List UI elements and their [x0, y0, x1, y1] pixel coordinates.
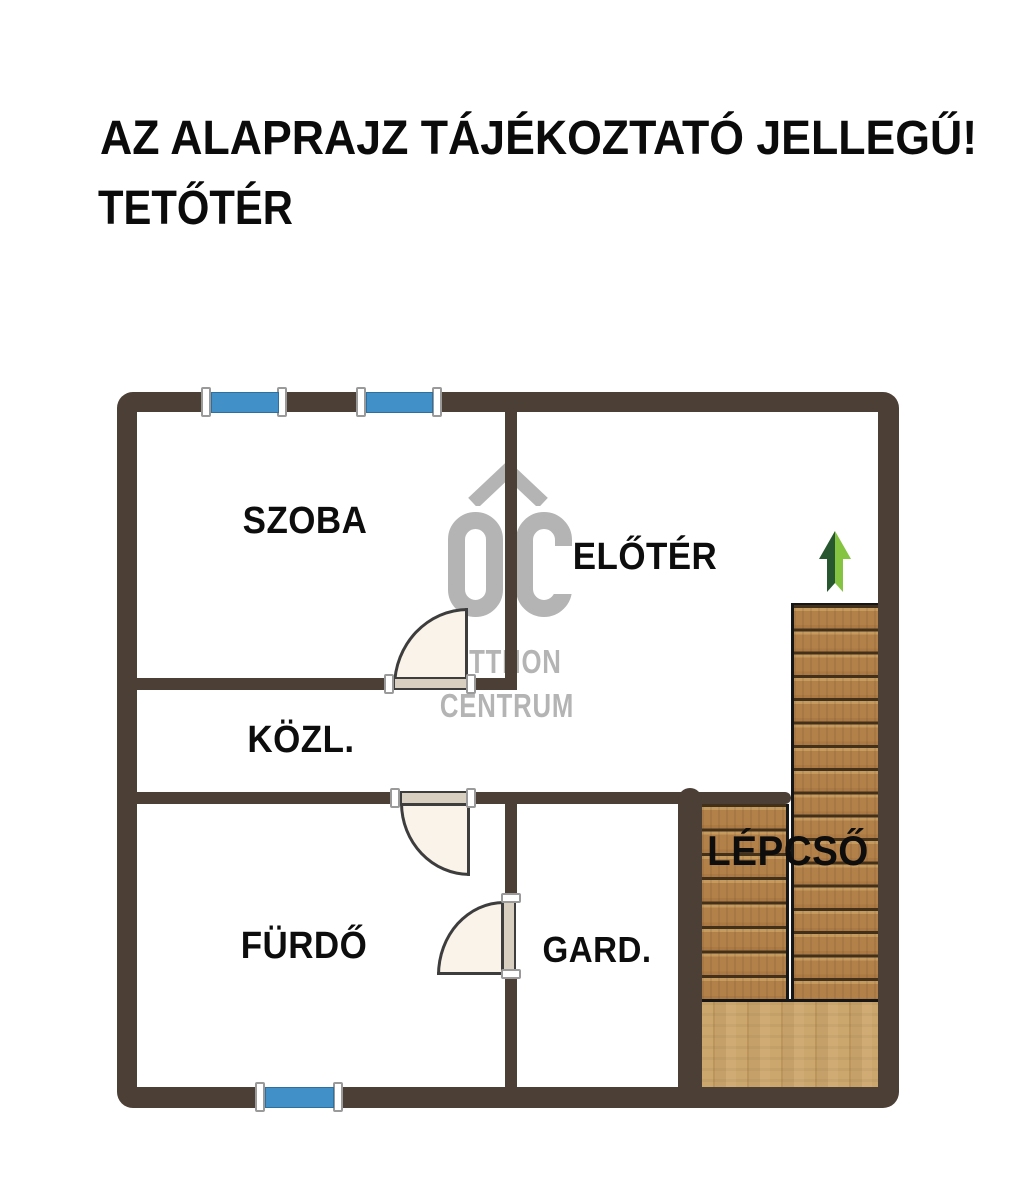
logo-initials: OC	[0, 0, 1, 1]
floorplan-page: AZ ALAPRAJZ TÁJÉKOZTATÓ JELLEGŰ! TETŐTÉR…	[0, 0, 1020, 1180]
wall-szoba-eloter	[505, 412, 517, 690]
window2	[366, 392, 433, 413]
door3-jamb-bottom	[501, 969, 521, 979]
door2-jamb-right	[466, 788, 476, 808]
window2-jamb-right	[432, 387, 442, 417]
window2-jamb-left	[356, 387, 366, 417]
window3-jamb-left	[255, 1082, 265, 1112]
door2-jamb-left	[390, 788, 400, 808]
door2-leaf	[400, 791, 470, 805]
room-label-eloter: ELŐTÉR	[573, 538, 718, 576]
door3-jamb-top	[501, 893, 521, 903]
disclaimer-title: AZ ALAPRAJZ TÁJÉKOZTATÓ JELLEGŰ!	[100, 113, 977, 166]
wall-furdo-gard-bottom	[505, 977, 517, 1087]
floor-title: TETŐTÉR	[98, 183, 293, 236]
room-label-furdo: FÜRDŐ	[241, 927, 368, 965]
wall-furdo-gard-top	[505, 804, 517, 899]
staircase-landing	[702, 999, 878, 1087]
logo-o-shape	[448, 512, 503, 617]
wall-gard-lepcso	[678, 788, 702, 1087]
room-label-szoba: SZOBA	[243, 502, 368, 540]
window1-jamb-left	[201, 387, 211, 417]
door1-jamb-right	[466, 674, 476, 694]
door3-leaf	[502, 901, 516, 975]
room-label-gard: GARD.	[542, 932, 651, 968]
door1-leaf	[393, 677, 469, 690]
wall-eloter-lepcso	[474, 792, 791, 804]
staircase-upper-run	[791, 603, 878, 999]
window3	[265, 1087, 334, 1108]
wall-szoba-kozl-right	[470, 678, 517, 690]
door1-jamb-left	[384, 674, 394, 694]
window1	[211, 392, 279, 413]
room-label-lepcso: LÉPCSŐ	[707, 830, 869, 872]
window3-jamb-right	[333, 1082, 343, 1112]
stairs-up-arrow-icon	[816, 529, 854, 595]
room-label-kozl: KÖZL.	[247, 721, 354, 759]
wall-kozl-furdo-left	[137, 792, 393, 804]
wall-szoba-kozl-left	[137, 678, 393, 690]
